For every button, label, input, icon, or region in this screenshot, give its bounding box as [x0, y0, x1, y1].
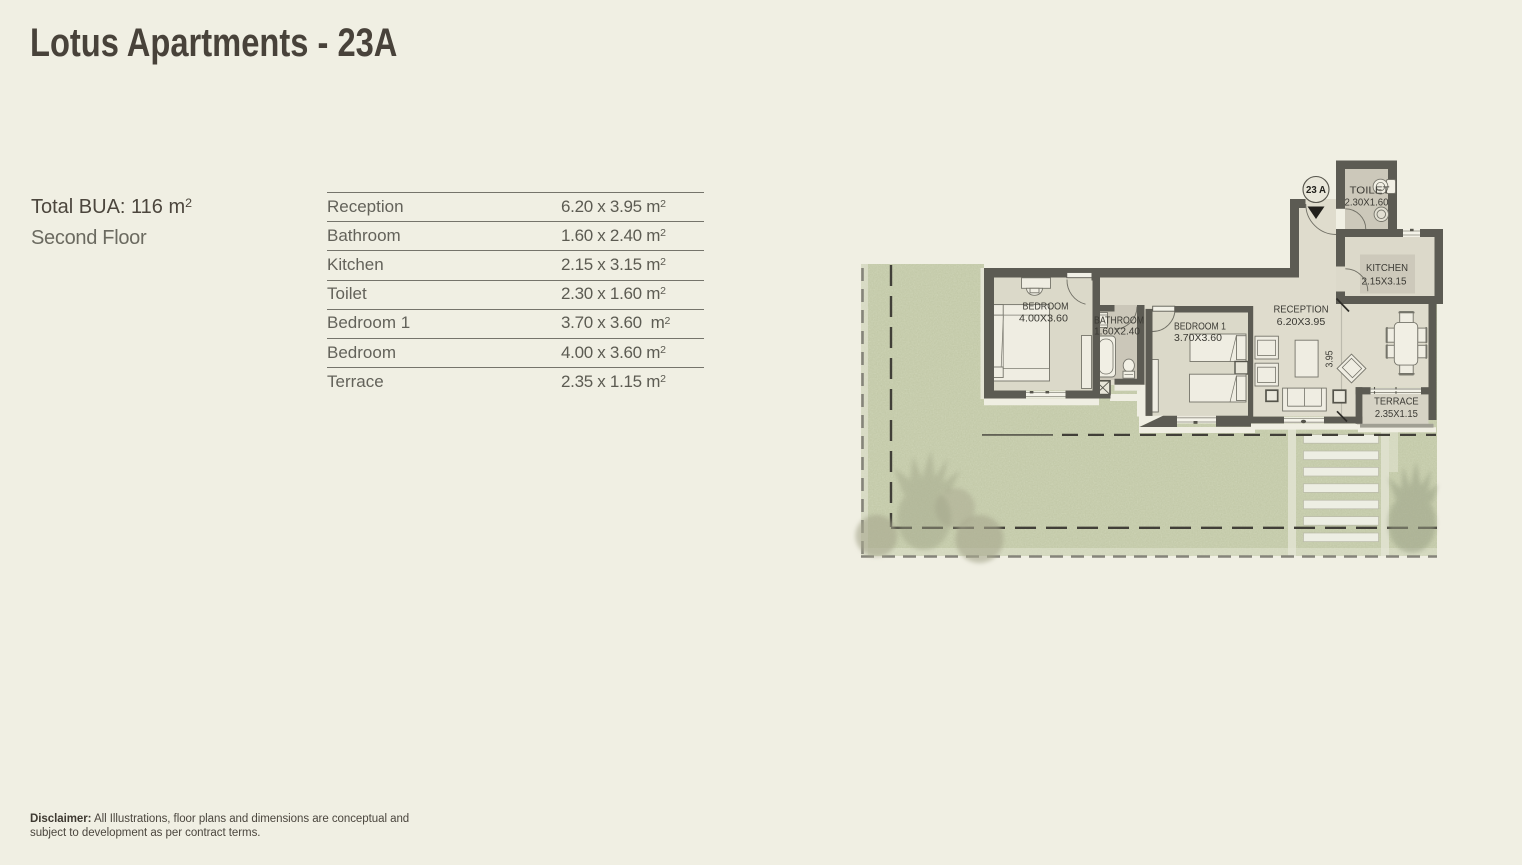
svg-text:4.00X3.60: 4.00X3.60: [1019, 314, 1068, 325]
svg-text:1.60X2.40: 1.60X2.40: [1094, 327, 1140, 338]
svg-text:BEDROOM 1: BEDROOM 1: [1174, 322, 1226, 333]
svg-text:TERRACE: TERRACE: [1374, 397, 1419, 408]
svg-text:BEDROOM: BEDROOM: [1023, 302, 1069, 313]
svg-text:3.95: 3.95: [1325, 350, 1336, 367]
svg-text:6.20X3.95: 6.20X3.95: [1277, 317, 1326, 328]
svg-text:RECEPTION: RECEPTION: [1274, 305, 1329, 316]
svg-text:2.30X1.60: 2.30X1.60: [1345, 198, 1389, 209]
svg-text:2.15X3.15: 2.15X3.15: [1362, 277, 1407, 288]
svg-text:BATHROOM: BATHROOM: [1094, 316, 1144, 327]
svg-text:KITCHEN: KITCHEN: [1366, 263, 1408, 274]
svg-text:TOILET: TOILET: [1350, 186, 1390, 197]
svg-text:23 A: 23 A: [1306, 184, 1326, 196]
svg-text:3.70X3.60: 3.70X3.60: [1174, 333, 1222, 344]
svg-text:2.35X1.15: 2.35X1.15: [1375, 409, 1418, 420]
